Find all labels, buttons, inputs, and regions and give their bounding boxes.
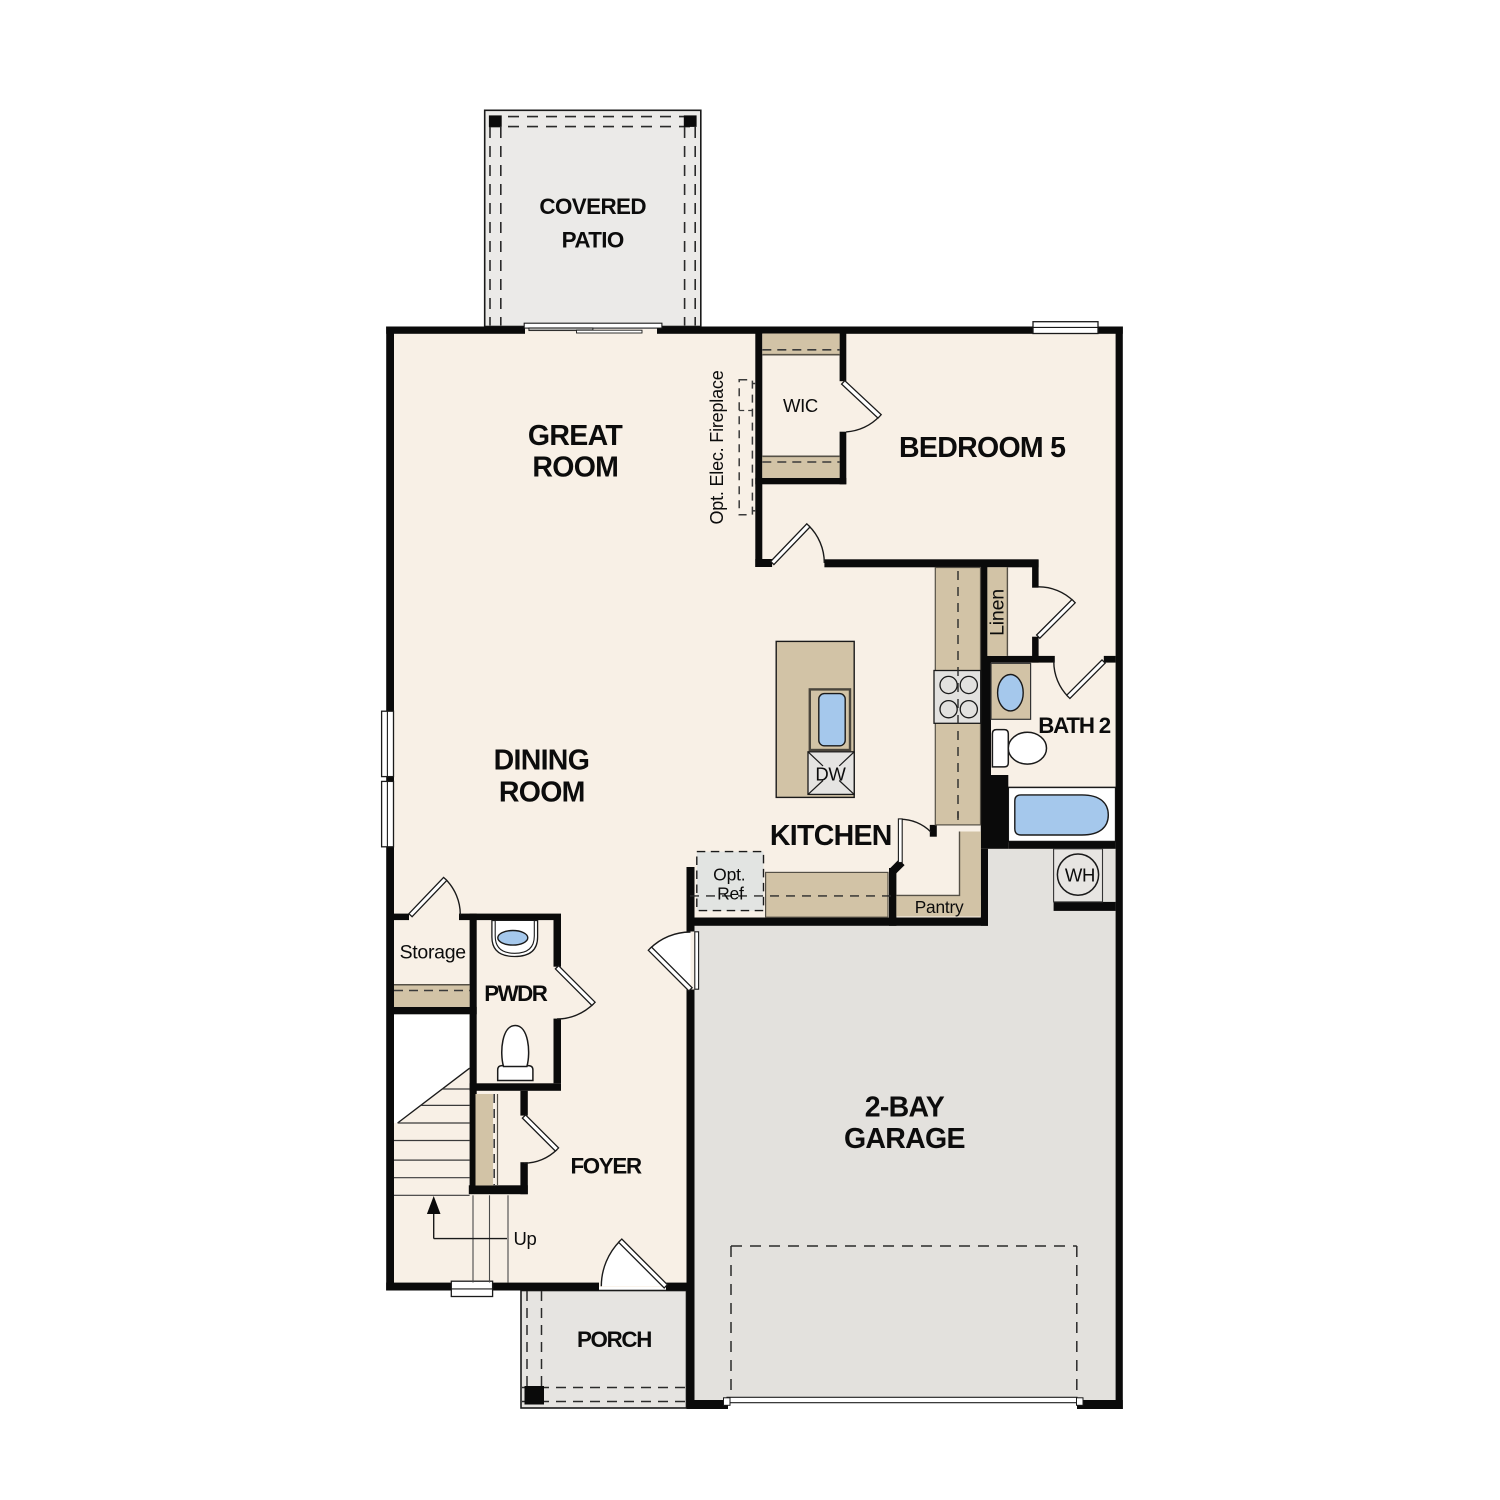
svg-text:2-BAY: 2-BAY [865, 1091, 945, 1123]
svg-text:BEDROOM 5: BEDROOM 5 [899, 432, 1066, 464]
svg-text:ROOM: ROOM [532, 452, 618, 484]
svg-text:WH: WH [1065, 865, 1095, 886]
svg-text:Pantry: Pantry [915, 897, 964, 917]
svg-text:Storage: Storage [400, 942, 466, 964]
svg-text:GARAGE: GARAGE [844, 1123, 965, 1155]
svg-text:BATH 2: BATH 2 [1038, 713, 1110, 738]
svg-text:Opt.: Opt. [713, 865, 745, 885]
svg-text:KITCHEN: KITCHEN [770, 820, 892, 852]
svg-text:Up: Up [514, 1228, 537, 1249]
svg-text:COVERED: COVERED [539, 194, 646, 219]
svg-text:DINING: DINING [494, 744, 590, 776]
svg-text:GREAT: GREAT [528, 420, 623, 452]
svg-text:PATIO: PATIO [562, 228, 624, 253]
svg-text:DW: DW [815, 764, 846, 785]
svg-text:Opt. Elec. Fireplace: Opt. Elec. Fireplace [707, 370, 727, 524]
svg-text:Linen: Linen [987, 589, 1009, 636]
svg-text:PORCH: PORCH [577, 1327, 651, 1352]
svg-text:Ref: Ref [717, 884, 744, 904]
svg-text:ROOM: ROOM [499, 776, 585, 808]
svg-text:WIC: WIC [783, 395, 818, 416]
svg-text:FOYER: FOYER [570, 1153, 642, 1178]
svg-text:PWDR: PWDR [484, 981, 548, 1006]
